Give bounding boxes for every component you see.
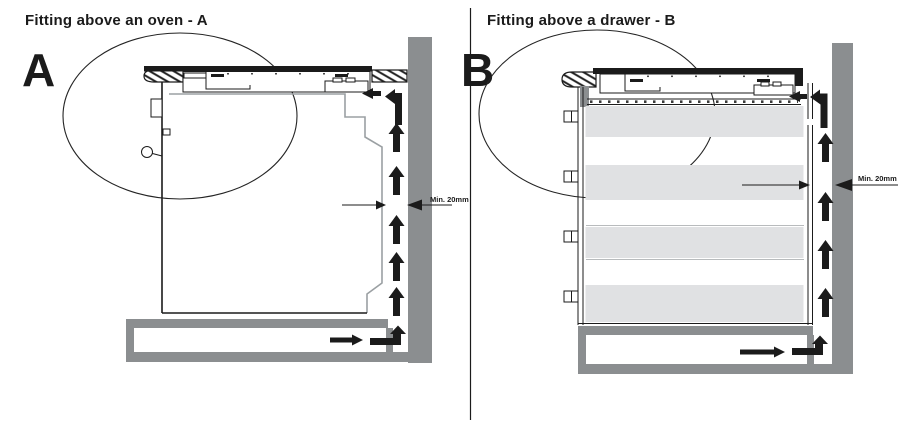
plinth-bottom-a <box>126 352 408 362</box>
junction-bump-2-a <box>346 78 355 82</box>
airflow-up-arrow-b1 <box>818 133 834 162</box>
drawer-1-b <box>586 106 804 137</box>
worktop-right-section-a <box>372 70 407 82</box>
airflow-up-arrow-b3 <box>818 240 834 269</box>
drawer-4-b <box>586 285 804 322</box>
panel-a-title: Fitting above an oven - A <box>25 12 208 29</box>
oven-latch-a <box>163 129 170 135</box>
worktop-left-section-a <box>144 70 183 82</box>
hob-installation-diagram: Fitting above an oven - A A <box>0 0 903 435</box>
panel-b-title: Fitting above a drawer - B <box>487 12 676 29</box>
plinth-a <box>126 319 408 362</box>
airflow-plinth-arrow-b <box>740 347 785 358</box>
drawer-2-b <box>586 165 804 200</box>
panel-fitting-above-drawer: Fitting above a drawer - B B <box>461 12 898 374</box>
oven-cabinet-a <box>142 82 383 313</box>
hob-left-flange-a <box>184 73 206 78</box>
hob-terminal-left-b <box>630 79 643 82</box>
airflow-up-arrow-b2 <box>818 192 834 221</box>
diagram-canvas: Fitting above an oven - A A <box>0 0 903 435</box>
plinth-top-a <box>126 319 388 328</box>
hob-junction-box-a <box>325 81 368 92</box>
hob-glass-b <box>593 68 803 74</box>
plinth-left-b <box>578 326 586 374</box>
junction-bump-1-b <box>761 82 769 86</box>
drawer-unit-b <box>564 83 813 325</box>
airflow-arrows-a <box>330 88 406 346</box>
airflow-plinth-arrow-a <box>330 335 363 346</box>
cabinet-left-post-b <box>580 86 589 107</box>
panel-b-letter: B <box>461 44 494 96</box>
airflow-up-arrow-a2 <box>389 166 405 195</box>
airflow-up-arrow-a4 <box>389 252 405 281</box>
oven-cable-stub-a <box>153 154 163 157</box>
callout-ellipse-a <box>63 33 297 199</box>
min-gap-dimension-a: Min. 20mm <box>342 195 469 211</box>
hob-terminal-right-a <box>335 74 348 77</box>
junction-bump-1-a <box>333 78 342 82</box>
panel-a-letter: A <box>22 44 55 96</box>
oven-outline-a <box>169 94 382 313</box>
min-gap-label-a: Min. 20mm <box>430 195 469 204</box>
airflow-up-arrow-a3 <box>389 215 405 244</box>
side-wall-b <box>832 43 853 373</box>
oven-hinge-a <box>151 99 162 117</box>
drawer-runner-brackets-b <box>564 111 578 302</box>
oven-cable-loop-a <box>142 147 153 158</box>
hob-terminal-left-a <box>211 74 224 77</box>
junction-bump-2-b <box>773 82 781 86</box>
hob-glass-a <box>144 66 372 72</box>
plinth-bottom-b <box>578 364 853 374</box>
airflow-up-arrow-a5 <box>389 287 405 316</box>
worktop-left-section-b <box>562 72 596 87</box>
drawer-3-b <box>586 227 804 258</box>
min-gap-label-b: Min. 20mm <box>858 174 897 183</box>
panel-fitting-above-oven: Fitting above an oven - A A <box>22 12 469 363</box>
plinth-top-b <box>578 326 813 335</box>
dim-arrow-right-pointing-a <box>376 201 386 210</box>
vent-grille-strip-b <box>587 99 801 105</box>
side-wall-a <box>408 37 432 363</box>
airflow-up-arrow-a1 <box>389 123 405 152</box>
airflow-up-arrow-b4 <box>818 288 834 317</box>
airflow-top-bend-arrow-a <box>385 89 402 125</box>
plinth-left-a <box>126 319 134 362</box>
